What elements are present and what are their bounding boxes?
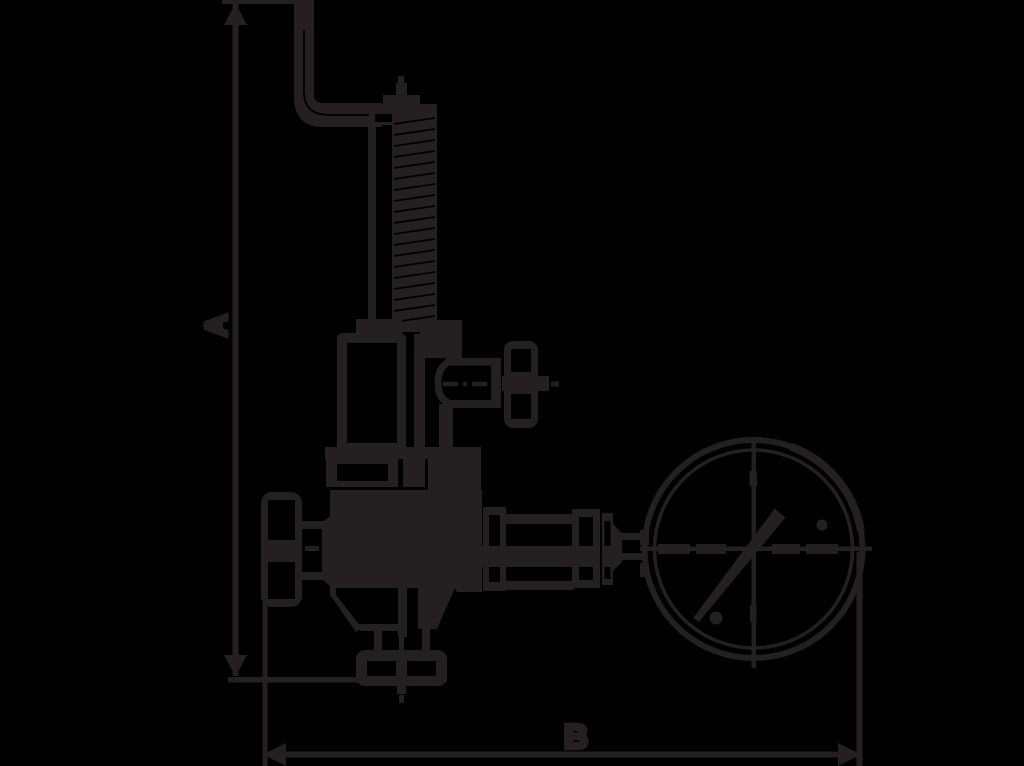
svg-text:A: A: [199, 314, 234, 336]
svg-text:B: B: [564, 718, 588, 755]
